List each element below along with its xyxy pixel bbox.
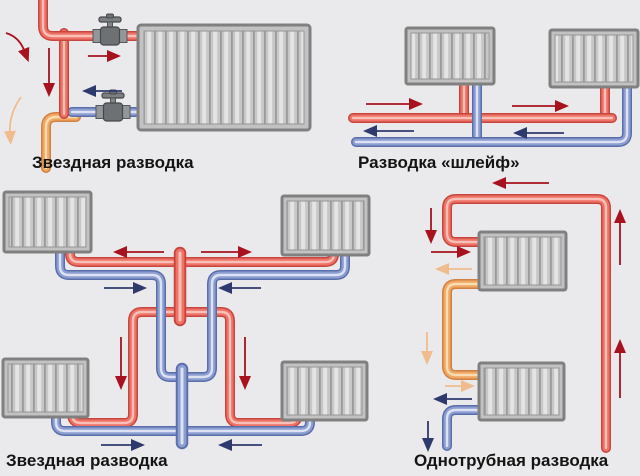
radiator: [138, 25, 310, 130]
radiator: [4, 192, 91, 252]
radiator: [479, 232, 566, 290]
panel-loop: [353, 28, 638, 142]
return-pipe: [447, 410, 478, 446]
radiator: [550, 30, 638, 87]
radiator: [406, 28, 494, 84]
supply-valve-icon: [93, 14, 127, 45]
radiator: [282, 196, 369, 255]
caption-loop: Разводка «шлейф»: [358, 153, 520, 173]
panel-star-single: [6, 0, 310, 168]
panel-one-pipe: [427, 183, 620, 448]
mixed-link-pipe: [447, 284, 478, 375]
radiator: [3, 359, 88, 417]
radiator: [479, 363, 564, 420]
panel-star-multi: [3, 192, 369, 445]
radiator: [282, 362, 367, 420]
caption-star-multi: Звездная разводка: [6, 451, 168, 471]
heating-layouts-diagram: Звездная разводка Разводка «шлейф» Звезд…: [0, 0, 640, 476]
return-valve-icon: [96, 90, 130, 121]
flow-arrow-inlet-curve: [6, 33, 24, 50]
caption-star-single: Звездная разводка: [32, 153, 194, 173]
caption-one-pipe: Однотрубная разводка: [414, 451, 608, 471]
flow-arrow-outlet-curve: [10, 97, 21, 132]
